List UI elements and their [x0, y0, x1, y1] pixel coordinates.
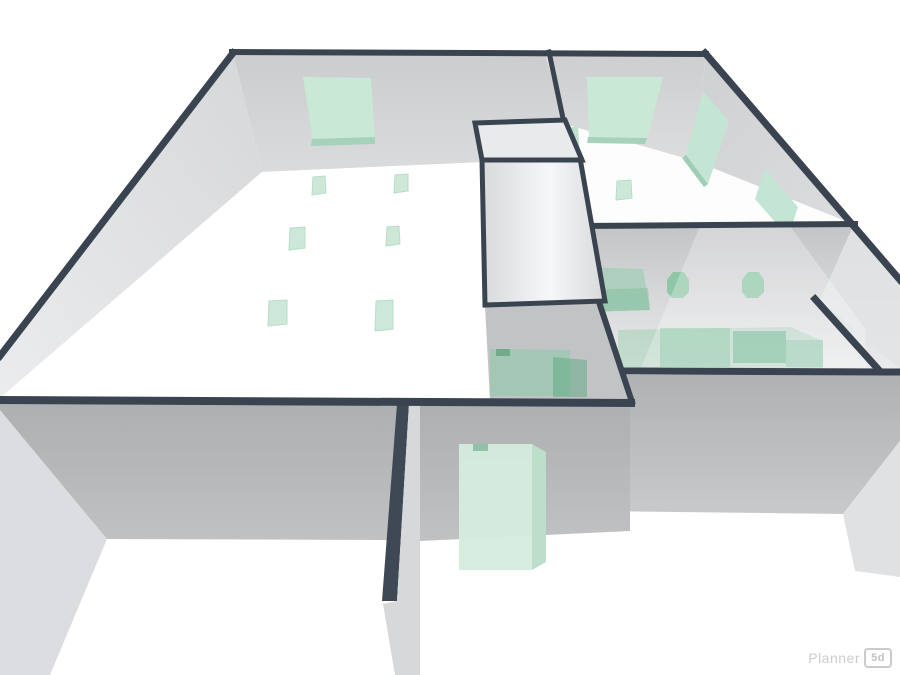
- floorplan-3d-viewport[interactable]: Planner 5d: [0, 0, 900, 675]
- floor-item-6: [375, 300, 393, 331]
- planner5d-watermark: Planner 5d: [808, 648, 892, 668]
- middle-door-notch: [496, 349, 510, 356]
- closet-top: [475, 120, 582, 160]
- back-wall-top-edge: [232, 52, 706, 54]
- floor-item-2: [394, 174, 408, 193]
- planner5d-logo-icon: 5d: [864, 648, 892, 668]
- watermark-brand-text: Planner: [808, 650, 860, 666]
- green-door-box: [459, 444, 532, 570]
- middle-door-green-dark: [553, 357, 587, 397]
- floor-item-4: [386, 226, 400, 246]
- bedroom-divider-edge: [578, 224, 855, 226]
- green-door-box-side: [532, 444, 546, 570]
- bedroom-floor-item: [616, 180, 632, 200]
- floor-item-1: [312, 176, 326, 195]
- floor-item-5: [268, 300, 287, 326]
- scene-shapes: [0, 52, 900, 675]
- front-left-wall-top-edge: [0, 400, 631, 403]
- floor-item-3: [289, 227, 305, 250]
- green-door-box-top: [473, 444, 488, 451]
- left-back-window: [303, 77, 375, 141]
- front-right-wall: [589, 374, 900, 514]
- scene-svg: [0, 0, 900, 675]
- bedroom-back-window-sill: [587, 137, 647, 144]
- front-right-wall-top-edge: [625, 371, 900, 372]
